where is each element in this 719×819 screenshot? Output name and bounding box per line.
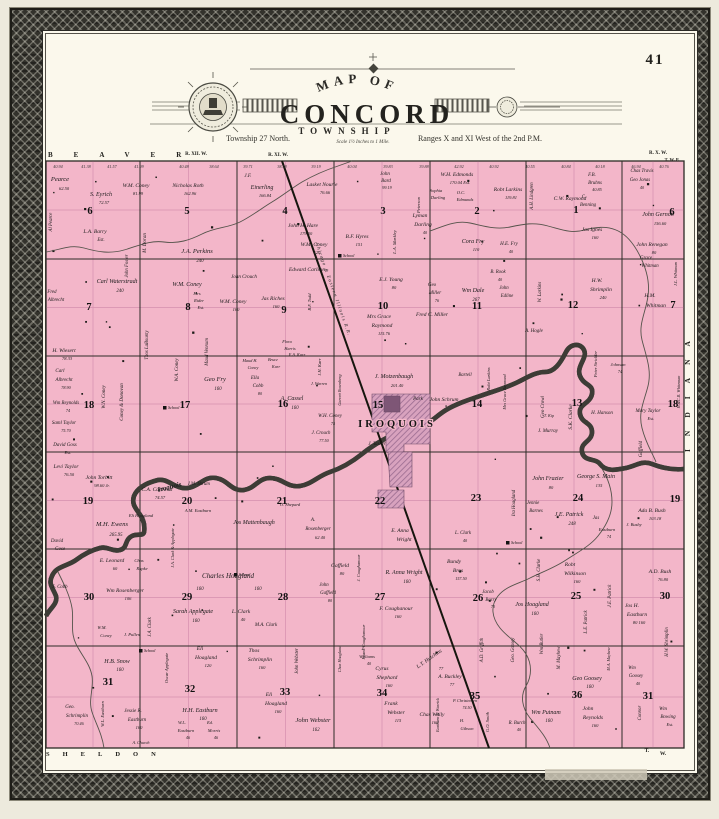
parcel-label: J. Warren: [311, 381, 327, 386]
acreage-label: 41.99: [134, 164, 144, 169]
parcel-label: H.W. Shrimplin: [665, 627, 670, 658]
parcel-label: E.A. Karr: [288, 352, 306, 357]
parcel-label: Bartell: [458, 373, 472, 378]
parcel-label: J. Pullen: [124, 632, 141, 637]
parcel-label: Gaffield: [331, 562, 349, 569]
edge-label: W.: [660, 751, 667, 757]
parcel-label: John: [380, 172, 390, 177]
parcel-label: B. Rook: [490, 270, 506, 275]
plat-map: Chicago & Eastern Illinois R.R. Pearce62…: [0, 0, 719, 819]
parcel-label: T. Kip: [544, 413, 554, 418]
section-number: 34: [377, 688, 388, 699]
parcel-label: 157.50: [455, 576, 467, 581]
parcel-label: Edline: [500, 294, 514, 299]
parcel-label: Reynolds: [582, 715, 603, 721]
parcel-label: Eastburn: [177, 728, 195, 733]
parcel-label: 170.04 Est.: [450, 180, 470, 185]
parcel-label: Lasket Nourie: [305, 182, 338, 188]
parcel-label: John Frazier: [532, 476, 564, 482]
parcel-label: Sophia: [430, 188, 443, 193]
parcel-label: I.M. Shrum: [187, 482, 210, 487]
section-number: 8: [185, 302, 190, 313]
parcel-label: W.M. Coney: [220, 299, 247, 305]
school-icon: [506, 541, 510, 545]
parcel-label: S. Eyrich: [90, 192, 112, 198]
section-number: 23: [471, 493, 482, 504]
acreage-label: 42.92: [454, 164, 463, 169]
parcel-label: Coney: [100, 633, 112, 638]
parcel-label: 248: [568, 522, 576, 527]
section-number: 11: [472, 301, 482, 312]
parcel-label: Est.: [64, 450, 72, 455]
acreage-label: 39.83: [383, 164, 392, 169]
parcel-label: Coney & Donovan: [120, 383, 125, 421]
parcel-label: Peter Strickler: [593, 351, 598, 379]
section-number: 25: [571, 591, 582, 602]
parcel-label: 115: [395, 718, 402, 723]
parcel-label: Rupke: [135, 566, 147, 571]
edge-label: SHELDON: [46, 751, 169, 758]
edge-label: BEAVER: [48, 151, 202, 159]
parcel-label: 151: [356, 242, 363, 247]
parcel-label: 77.50: [319, 438, 329, 443]
parcel-label: Whitman: [646, 303, 666, 309]
parcel-label: Chas Waily: [419, 712, 445, 718]
parcel-label: 120: [314, 250, 322, 255]
parcel-label: Jos H.: [625, 603, 639, 609]
parcel-label: 99.19: [382, 185, 392, 190]
medallion-icon: [178, 72, 248, 142]
parcel-label: Park: [412, 397, 424, 402]
parcel-label: Geo Fry: [204, 376, 226, 383]
parcel-label: Levi Taylor: [52, 464, 79, 470]
parcel-label: 62 40: [315, 535, 326, 540]
parcel-label: Mrs Grace Raymond: [502, 374, 507, 411]
parcel-label: W.N. Coney: [102, 384, 107, 408]
parcel-label: Bowing: [660, 715, 676, 720]
parcel-label: 74: [66, 408, 70, 413]
parcel-label: 80: [549, 485, 554, 490]
parcel-label: David: [50, 539, 64, 544]
parcel-label: B.F. Todd: [307, 293, 312, 311]
parcel-label: Jas Riches: [261, 296, 284, 302]
acreage-label: 39.88: [419, 164, 429, 169]
parcel-label: 75: [331, 421, 335, 426]
parcel-label: 77: [439, 666, 444, 671]
acreage-label: 40.55: [525, 164, 534, 169]
section-number: 33: [280, 687, 291, 698]
parcel-label: Wm Putnam: [531, 710, 561, 716]
parcel-label: 78.33: [62, 356, 73, 361]
parcel-label: J. Crouch: [312, 431, 331, 436]
parcel-label: J. Motzenbaugh: [375, 374, 413, 380]
parcel-label: W.L.: [178, 720, 186, 725]
parcel-label: Est.: [197, 305, 205, 310]
parcel-label: W.H. Edmonds: [441, 172, 474, 178]
acreage-label: 40.48: [179, 164, 189, 169]
parcel-label: Thos LaBounty: [145, 330, 150, 360]
parcel-label: Darling: [430, 195, 446, 200]
parcel-label: Jos Hoagland: [515, 602, 549, 608]
parcel-label: 160: [259, 665, 267, 670]
section-number: 19: [670, 494, 681, 505]
parcel-label: 120: [205, 663, 213, 668]
section-number: 15: [373, 400, 384, 411]
parcel-label: Hoagland: [264, 701, 287, 707]
parcel-label: J.A. Perkins: [181, 248, 213, 255]
parcel-label: Wm Butler: [540, 634, 545, 655]
parcel-label: 201.40: [391, 383, 404, 388]
parcel-label: A.M. Eastburn: [184, 508, 212, 513]
parcel-label: H.B. Snow: [103, 659, 130, 665]
parcel-label: Benning: [580, 203, 597, 208]
school-label: School: [511, 540, 523, 545]
parcel-label: 74: [618, 369, 622, 374]
parcel-label: 110: [473, 247, 480, 252]
parcel-label: 160: [273, 304, 281, 309]
section-number: 3: [380, 206, 385, 217]
parcel-label: Schrimplin: [248, 657, 272, 663]
parcel-label: Connor: [638, 706, 643, 721]
parcel-label: B.F. Hyres: [345, 234, 368, 240]
parcel-label: 80: [652, 250, 657, 255]
section-number: 22: [375, 496, 386, 507]
parcel-label: 179.50: [300, 231, 313, 236]
parcel-label: Rider: [193, 298, 204, 303]
section-number: 31: [643, 691, 654, 702]
parcel-label: Nicholas Roth: [171, 183, 204, 189]
parcel-label: Gibson: [460, 726, 474, 731]
parcel-label: Wright: [397, 537, 412, 543]
parcel-label: Eastburn: [127, 718, 147, 723]
parcel-label: 160: [291, 406, 299, 411]
section-number: 29: [182, 592, 193, 603]
parcel-label: A.H. Lindgren: [530, 182, 535, 211]
township-name: CONCORD: [280, 99, 455, 129]
school-label: School: [239, 572, 251, 577]
section-number: 7: [86, 302, 91, 313]
parcel-label: Karr: [271, 364, 281, 369]
parcel-label: John: [319, 583, 329, 588]
section-number: 16: [278, 399, 289, 410]
section-number: 26: [473, 593, 484, 604]
parcel-label: Chas Hoagland: [337, 645, 342, 672]
parcel-label: 72.57: [99, 200, 110, 205]
parcel-label: John Torbitt: [86, 475, 113, 481]
parcel-label: 60: [113, 566, 118, 571]
acreage-label: 39.71: [243, 164, 252, 169]
parcel-label: John H. Hare: [288, 223, 318, 229]
parcel-label: John Schrum: [430, 397, 459, 403]
parcel-label: Webster: [387, 710, 405, 716]
parcel-label: L.A. Barry: [82, 229, 107, 235]
parcel-label: M.A. Clark: [254, 623, 278, 628]
parcel-label: 160: [592, 235, 600, 240]
parcel-label: J. Tasker: [368, 442, 385, 447]
parcel-label: Wm: [659, 707, 667, 712]
parcel-label: Est.: [96, 238, 104, 243]
parcel-label: A.D. Griffith: [480, 637, 485, 663]
parcel-label: J. Coughanour: [356, 554, 361, 581]
parcel-label: 119.81: [505, 195, 517, 200]
parcel-label: 40: [241, 617, 246, 622]
parcel-label: Wm: [628, 666, 636, 671]
parcel-label: Est.: [647, 416, 655, 421]
parcel-label: Williams: [359, 654, 375, 659]
parcel-label: Darling: [413, 222, 432, 228]
parcel-label: F. Coughanour: [378, 606, 413, 612]
parcel-label: Thos: [249, 648, 260, 654]
parcel-label: 240: [600, 295, 608, 300]
school-icon: [163, 406, 167, 410]
school-icon: [139, 649, 143, 653]
section-number: 17: [180, 400, 191, 411]
section-number: 27: [375, 592, 386, 603]
section-number: 9: [281, 305, 286, 316]
parcel-label: Sarah Applegate: [173, 609, 213, 615]
parcel-label: 160: [192, 619, 200, 624]
parcel-label: Wm Rosenberger: [106, 588, 145, 594]
section-number: 32: [185, 684, 196, 695]
parcel-label: 160: [586, 685, 594, 690]
parcel-label: M. Doran: [143, 233, 148, 254]
page-number: 41: [646, 52, 665, 68]
parcel-label: 160: [275, 709, 283, 714]
parcel-label: W. Larkins: [538, 282, 543, 303]
parcel-label: 75.70: [61, 428, 71, 433]
section-number: 18: [668, 399, 679, 410]
acreage-label: 59.63: [36, 325, 41, 334]
parcel-label: L. Clark: [454, 531, 472, 536]
parcel-label: Albrecht: [47, 298, 65, 303]
parcel-label: J.A. Clark & Applegate: [170, 528, 175, 567]
parcel-label: Est.: [666, 722, 674, 727]
parcel-label: R. Anna Wright: [384, 570, 422, 576]
parcel-label: Geo.: [65, 705, 75, 710]
parcel-label: Rosenberger: [304, 527, 330, 532]
school-icon: [234, 573, 238, 577]
edge-label: R. X. W.: [649, 151, 668, 156]
acreage-label: 38.64: [209, 164, 218, 169]
parcel-label: 76.80: [658, 577, 669, 582]
parcel-label: 74.57: [155, 495, 166, 500]
section-number: 2: [474, 206, 479, 217]
parcel-label: Geo Goosey: [572, 676, 602, 682]
parcel-label: 240: [116, 289, 124, 294]
parcel-label: 160: [574, 579, 582, 584]
parcel-label: Schrimplin: [66, 714, 88, 719]
acreage-label: 41.38: [81, 164, 91, 169]
parcel-label: 160: [592, 723, 600, 728]
parcel-label: 166.84: [259, 193, 272, 198]
acreage-label: 46.94: [631, 164, 640, 169]
parcel-label: E. Leonard: [99, 558, 125, 564]
parcel-label: 62.50: [59, 186, 70, 191]
parcel-label: S. Cobb: [52, 585, 68, 590]
section-number: 6: [669, 207, 674, 218]
parcel-label: Jennie: [527, 501, 540, 506]
parcel-label: Geo: [428, 283, 437, 288]
parcel-label: A.D. Bush: [648, 569, 672, 575]
parcel-label: Flora: [281, 339, 292, 344]
parcel-label: L.E. Patrick: [584, 609, 589, 634]
parcel-label: O.C.: [457, 190, 466, 195]
parcel-label: 156.60: [654, 221, 667, 226]
parcel-label: John Webster: [295, 648, 300, 674]
parcel-label: J.F.: [244, 174, 251, 179]
parcel-label: Eli: [265, 692, 273, 698]
acreage-label: 58.64: [36, 515, 41, 524]
parcel-label: 70.46: [74, 721, 84, 726]
parcel-label: H.H. Eastburn: [181, 708, 217, 714]
parcel-label: Fred: [46, 290, 57, 295]
parcel-label: Geo. Goosey: [511, 637, 516, 663]
parcel-label: Bruce: [268, 357, 278, 362]
parcel-label: M.H. Ewens: [95, 521, 128, 528]
parcel-label: 135: [596, 483, 604, 488]
acreage-label: 40.92: [489, 164, 498, 169]
parcel-label: A. Hogle: [524, 329, 544, 334]
parcel-label: Grace: [640, 256, 653, 261]
parcel-label: J. Murray: [538, 429, 559, 434]
parcel-label: 80: [392, 285, 397, 290]
parcel-label: J.L. Whitman: [673, 261, 678, 286]
parcel-label: 98.60 Jr.: [94, 483, 110, 488]
acreage-label: 39.19: [311, 164, 321, 169]
parcel-label: 160: [403, 580, 411, 585]
parcel-label: L. Clark: [231, 609, 251, 615]
parcel-label: Garrett Rosenberg: [337, 374, 342, 405]
parcel-label: M.A. Mayhew: [606, 647, 611, 672]
parcel-label: 160: [233, 307, 241, 312]
parcel-label: Carl: [55, 369, 65, 374]
parcel-label: Johnson: [611, 362, 627, 367]
acreage-label: 41.57: [107, 164, 117, 169]
section-number: 6: [87, 206, 92, 217]
parcel-label: David Goss: [52, 443, 77, 448]
parcel-label: Harris: [283, 346, 296, 351]
parcel-label: J. Busby: [626, 522, 641, 527]
parcel-label: Geo Jonas: [630, 178, 651, 183]
township-word: TOWNSHIP: [298, 126, 395, 136]
ranges-line: Ranges X and XI West of the 2nd P.M.: [418, 134, 542, 143]
parcel-label: Ira Hoagland: [512, 489, 517, 517]
section-number: 21: [277, 496, 288, 507]
section-number: 14: [472, 399, 483, 410]
parcel-label: Chas Travis: [630, 169, 653, 174]
parcel-label: Saml Taylor: [52, 421, 76, 426]
edge-label: R. XI. W.: [268, 153, 289, 158]
parcel-label: Robt: [564, 562, 576, 568]
parcel-label: John Webster: [296, 717, 331, 724]
parcel-label: Goosey: [629, 674, 644, 679]
parcel-label: Whitman: [641, 264, 659, 269]
parcel-label: Jessie R.: [124, 709, 142, 714]
parcel-label: W.M.: [97, 625, 106, 630]
parcel-label: Fred C. Miller: [415, 312, 449, 318]
parcel-label: 160: [116, 668, 124, 673]
acreage-label: 39.48: [36, 552, 41, 562]
parcel-label: Wilkinson: [564, 571, 586, 577]
parcel-label: Gaffield: [639, 440, 644, 457]
parcel-label: Peterson: [416, 196, 421, 214]
parcel-label: Maud Vennum: [205, 338, 210, 367]
parcel-label: 160: [214, 387, 222, 392]
parcel-label: 81.99: [133, 191, 144, 196]
parcel-label: 115.76: [378, 331, 391, 336]
parcel-label: W.M. Coney: [123, 183, 150, 189]
parcel-label: H.E. Fry: [499, 242, 518, 247]
parcel-label: George S. Main: [577, 474, 615, 480]
parcel-label: Shephard: [377, 675, 398, 681]
parcel-label: Eli Hoagland: [128, 513, 154, 518]
parcel-label: 80 160: [633, 620, 646, 625]
parcel-label: Morris: [207, 728, 221, 733]
parcel-label: Ada B. Bush: [637, 508, 666, 514]
section-number: 35: [470, 691, 481, 702]
edge-label: INDIANA: [683, 328, 692, 452]
parcel-label: S.H. Clarke: [537, 558, 542, 581]
parcel-label: Maud H.: [242, 358, 258, 363]
parcel-label: Ella: [250, 376, 260, 381]
parcel-label: Barnes: [529, 509, 543, 514]
parcel-label: Barry: [485, 598, 497, 603]
parcel-label: H.M.: [643, 293, 655, 299]
parcel-label: Raymond: [371, 323, 393, 329]
parcel-label: A.: [310, 518, 315, 523]
scale-line: Scale 1½ Inches to 1 Mile.: [336, 140, 389, 145]
parcel-label: Eli: [196, 646, 204, 652]
school-label: School: [343, 253, 355, 258]
parcel-label: H.: [459, 718, 464, 723]
parcel-label: Coney: [248, 365, 259, 370]
edge-label: R. XII. W.: [185, 152, 208, 157]
school-icon: [338, 254, 342, 258]
parcel-label: 40.85: [592, 187, 601, 192]
parcel-label: Cobb: [253, 384, 264, 389]
parcel-label: H.W.: [591, 278, 603, 284]
parcel-label: Miller: [428, 291, 442, 296]
parcel-label: Eastburn: [598, 527, 616, 532]
section-number: 36: [572, 690, 583, 701]
parcel-label: J.: [361, 646, 364, 651]
section-number: 10: [378, 301, 389, 312]
acreage-label: 38.18: [36, 592, 41, 602]
acreage-label: 48.94: [36, 250, 41, 259]
parcel-label: 160: [136, 725, 144, 730]
section-number: 7: [670, 300, 675, 311]
parcel-label: John Crouch: [231, 275, 257, 280]
parcel-label: A. Church: [131, 740, 149, 745]
parcel-label: W.A. Coney: [175, 358, 180, 382]
section-number: 20: [182, 496, 193, 507]
parcel-label: 160: [196, 587, 204, 592]
acreage-label: 40.18: [595, 164, 605, 169]
map-of-arc: MAP OF: [314, 71, 400, 95]
parcel-label: G.O. Smith: [485, 711, 490, 732]
parcel-label: Pearce: [50, 176, 69, 183]
parcel-label: 160: [395, 614, 403, 619]
parcel-label: J.H. Karr: [317, 358, 322, 376]
parcel-label: F.B.: [587, 173, 596, 178]
edge-label: T. W. P.: [665, 157, 680, 162]
parcel-label: W.L. Eastburn: [100, 700, 105, 726]
parcel-label: Ed.: [206, 720, 213, 725]
parcel-label: 74: [607, 534, 611, 539]
parcel-label: Eastburn: [626, 612, 647, 618]
parcel-label: Chas: [134, 558, 144, 563]
parcel-label: Jos Mattenbaugh: [233, 520, 275, 526]
